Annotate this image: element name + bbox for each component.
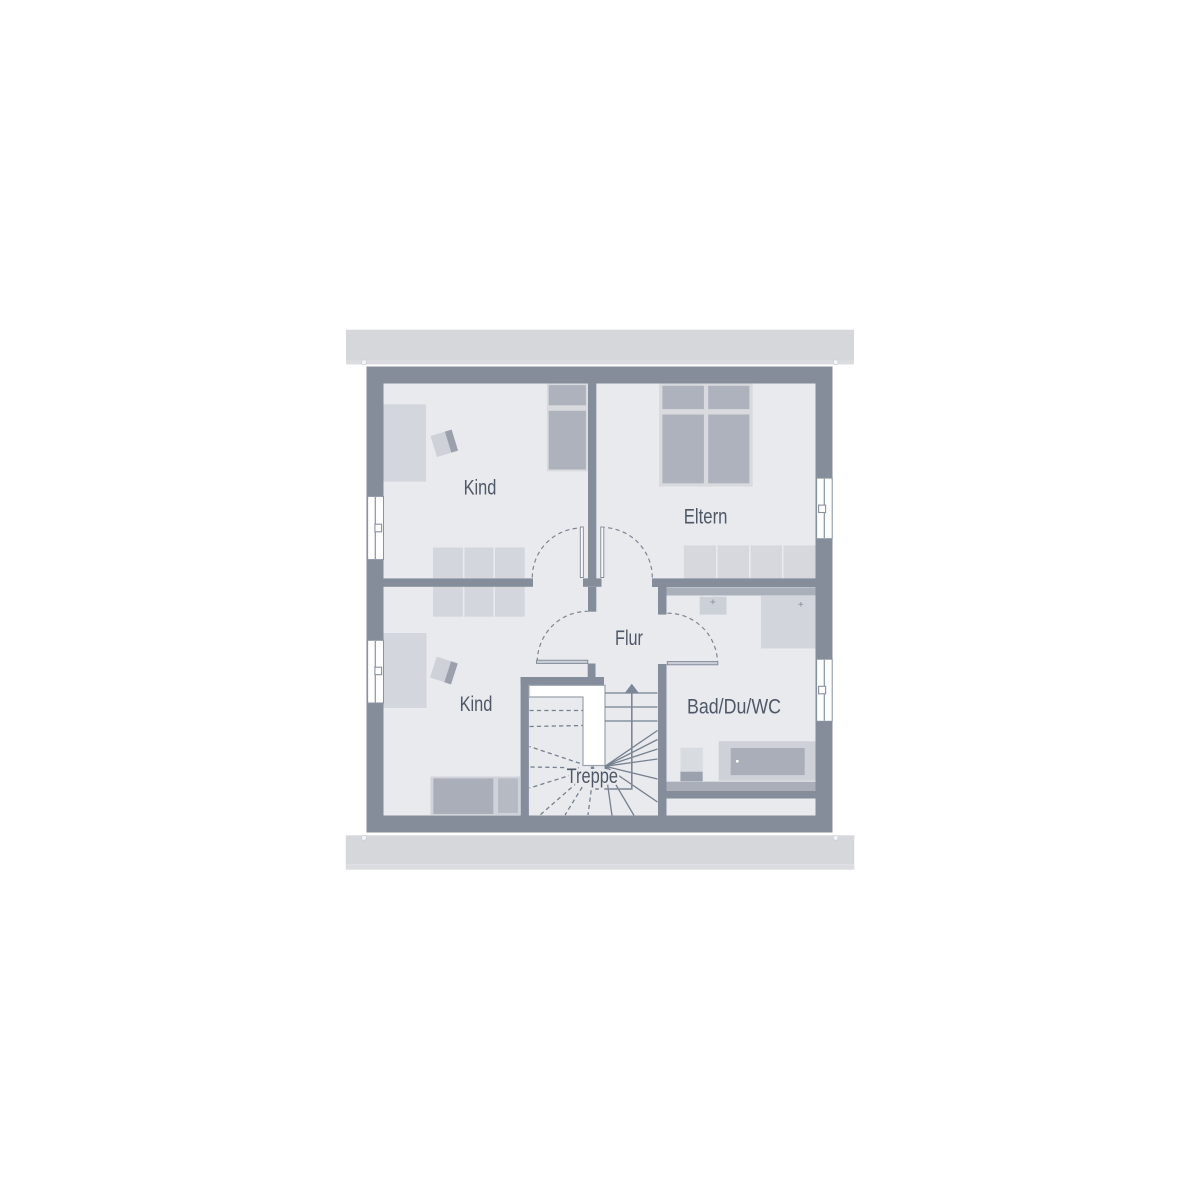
svg-text:Eltern: Eltern (684, 506, 728, 529)
svg-text:Kind: Kind (464, 477, 497, 500)
svg-text:Bad/Du/WC: Bad/Du/WC (687, 696, 781, 719)
svg-text:Kind: Kind (460, 693, 493, 716)
svg-text:Treppe: Treppe (567, 765, 618, 788)
svg-text:Flur: Flur (615, 627, 643, 650)
